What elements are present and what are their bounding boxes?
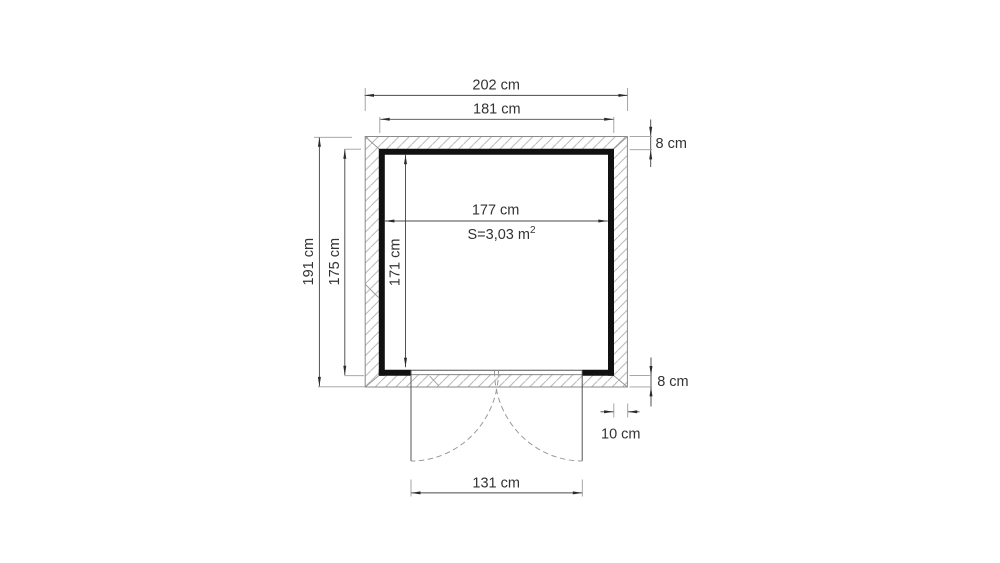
svg-text:171 cm: 171 cm [388, 239, 404, 287]
svg-text:S=3,03 m2: S=3,03 m2 [468, 225, 536, 243]
svg-text:8 cm: 8 cm [656, 136, 687, 152]
svg-text:202 cm: 202 cm [472, 78, 520, 94]
svg-text:10 cm: 10 cm [601, 426, 641, 442]
svg-text:175 cm: 175 cm [327, 238, 343, 286]
svg-text:191 cm: 191 cm [301, 238, 317, 286]
svg-text:8 cm: 8 cm [657, 374, 688, 390]
svg-text:181 cm: 181 cm [473, 101, 521, 117]
svg-text:131 cm: 131 cm [472, 475, 520, 491]
svg-text:177 cm: 177 cm [472, 202, 520, 218]
